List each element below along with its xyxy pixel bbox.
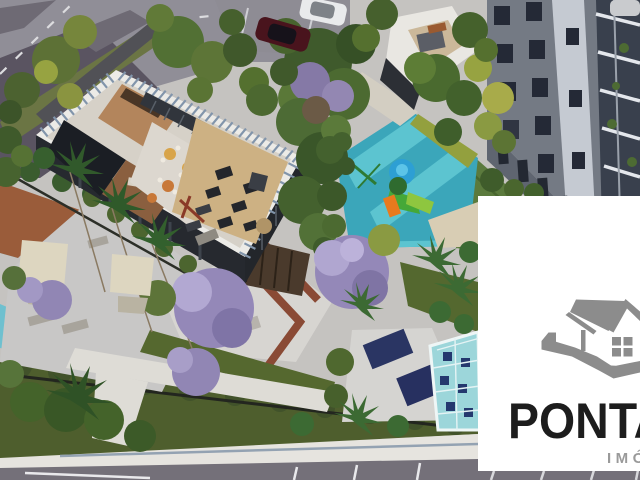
svg-text:PONTAL: PONTAL <box>508 393 640 449</box>
svg-text:IMÓVEIS: IMÓVEIS <box>607 449 640 467</box>
